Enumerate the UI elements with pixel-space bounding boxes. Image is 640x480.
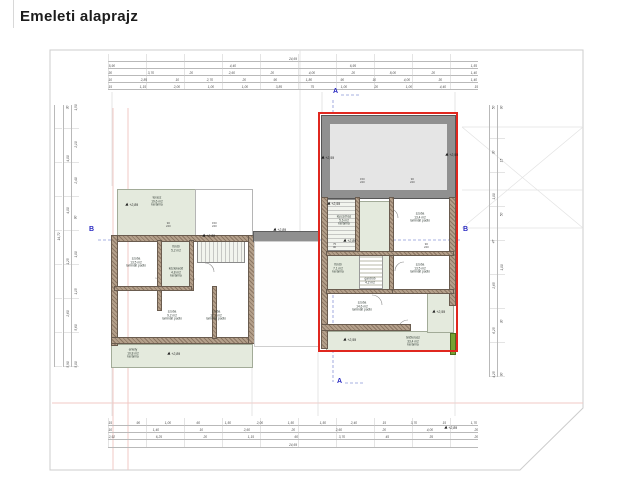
highlight-red-box [318, 112, 458, 352]
dim-value: 15 [108, 85, 112, 89]
dim-value: 2,40 [74, 178, 78, 184]
wall [112, 338, 254, 343]
opening-size: 150240 [360, 178, 365, 184]
room-area: 4,2 m2 [352, 281, 387, 285]
level-value: +2,89 [347, 238, 356, 242]
level-value: +2,89 [206, 233, 215, 237]
room-label-terasz: terasz19,6 m2kerámia [139, 196, 174, 207]
dim-value: 1,00 [242, 85, 248, 89]
level-value: +2,89 [277, 227, 286, 231]
room-area: 5,2 m2 [158, 249, 193, 253]
room-label-szoba4: szoba13,4 m2laminált padló [402, 212, 437, 223]
level-marker: +2,59 [328, 201, 340, 205]
dim-value: 1,15 [74, 288, 78, 294]
dim-value: 20 [474, 435, 478, 439]
level-marker: +2,59 [433, 309, 445, 313]
roof-projection-lines [462, 127, 583, 228]
dim-value: 2,92 [109, 435, 115, 439]
dim-chain-right-1: 50301,00472,656,254,25 [489, 105, 497, 377]
dim-value: 45 [386, 435, 390, 439]
room-floor: kerámia [326, 222, 361, 226]
wall [112, 236, 117, 345]
dim-value: 1,15 [140, 85, 146, 89]
dim-value: 1,00 [208, 85, 214, 89]
dim-value: 2,60 [66, 310, 70, 316]
room-label-szoba5: szoba13,5 m2laminált padló [402, 263, 437, 274]
dim-chain-left-1: 304,004,001,252,605,90 [63, 105, 71, 367]
dim-value: 90 [499, 106, 503, 110]
dim-value: 90 [73, 216, 77, 220]
level-marker: +2,89 [126, 202, 138, 206]
level-marker: +2,89 [344, 238, 356, 242]
room-label-furdo1: fürdő5,2 m2 [158, 245, 193, 252]
level-marker: +2,59 [322, 155, 334, 159]
room-label-tetoterasz: tetőterasz33,4 m2kerámia [395, 336, 430, 347]
opening-height: 240 [212, 225, 217, 228]
section-marker-b-left: B [89, 226, 94, 233]
dim-chain-top-5: 151,152,001,001,003,85751,00201,004,4015 [108, 82, 478, 90]
opening-height: 240 [424, 246, 429, 249]
wall [115, 287, 191, 290]
room-label-szoba1: szoba13,5 m2laminált padló [118, 257, 153, 268]
section-marker-a-bottom: A [337, 378, 342, 385]
dim-value: 50 [491, 106, 495, 110]
dim-value: 3,70 [339, 435, 345, 439]
opening-size: 90240 [166, 222, 171, 228]
section-marker-b-right: B [463, 226, 468, 233]
dim-chain-left-2: 1,502,102,40901,001,155,605,00 [71, 105, 79, 367]
dim-value: 1,00 [341, 85, 347, 89]
room-label-furdo2: fürdő7,1 m2kerámia [320, 263, 355, 274]
dim-value: 90 [499, 373, 503, 377]
room-floor: kerámia [139, 203, 174, 207]
dim-value: 4,40 [440, 85, 446, 89]
dim-value: 6,25 [492, 327, 496, 333]
dim-chain-bottom-3: 2,926,25201,15603,70453520 [108, 432, 478, 440]
level-value: +2,89 [171, 351, 180, 355]
opening-size: 90240 [424, 243, 429, 249]
level-value: +2,89 [448, 425, 457, 429]
dim-value: 2,00 [174, 85, 180, 89]
level-marker: +2,89 [274, 227, 286, 231]
dim-value: 24,69 [289, 443, 297, 447]
room-floor: laminált padló [344, 308, 379, 312]
dim-value: 4,00 [66, 207, 70, 213]
level-value: +2,59 [347, 337, 356, 341]
dim-value: 30 [499, 319, 503, 323]
dim-value: 2,65 [492, 282, 496, 288]
room-label-szoba3: szoba12,1 m2laminált padló [198, 310, 233, 321]
room-floor: laminált padló [402, 270, 437, 274]
dim-value: 1,25 [66, 259, 70, 265]
dim-chain-left-total: 14,72 [54, 105, 62, 367]
dim-value: 60 [295, 435, 299, 439]
room-label-szoba6: szoba14,6 m2laminált padló [344, 301, 379, 312]
room-floor: kerámia [115, 355, 150, 359]
level-value: +2,89 [129, 202, 138, 206]
level-value: +2,59 [436, 309, 445, 313]
dim-value: 5,90 [66, 361, 70, 367]
opening-height: 90 [333, 246, 336, 249]
dim-value: 1,00 [406, 85, 412, 89]
opening-size: 90240 [410, 178, 415, 184]
dim-value: 4,25 [492, 371, 496, 377]
floorplan-page: Emeleti alaprajz [0, 0, 640, 480]
dim-value: 30 [65, 106, 69, 110]
room-label-kozl1: közlekedő4,8 m2kerámia [158, 267, 193, 278]
dim-value: 3,85 [276, 85, 282, 89]
room-label-szoba2: szoba9,2 m2laminált padló [154, 310, 189, 321]
stairs-left-unit [198, 242, 244, 262]
opening-height: 240 [166, 225, 171, 228]
room-label-gardrob: gardrób4,2 m2 [352, 277, 387, 284]
dim-value: 5,60 [74, 325, 78, 331]
dim-value: 20 [375, 85, 379, 89]
dim-value: 1,15 [248, 435, 254, 439]
room-label-lepcso: lépcsőház5,6 m2kerámia [326, 215, 361, 226]
dim-value: 20 [203, 435, 207, 439]
room-floor: laminált padló [154, 317, 189, 321]
dim-value: 50 [499, 213, 503, 217]
level-marker: +2,59 [344, 337, 356, 341]
level-marker: +2,89 [445, 425, 457, 429]
dim-value: 75 [310, 85, 314, 89]
dim-value: 15 [474, 85, 478, 89]
dim-value: 47 [491, 239, 495, 243]
room-label-erkely: erkély10,8 m2kerámia [115, 348, 150, 359]
section-marker-a-top: A [333, 88, 338, 95]
opening-size: 150240 [212, 222, 217, 228]
opening-size: 7590 [333, 243, 336, 249]
opening-height: 240 [360, 181, 365, 184]
level-value: +2,59 [449, 152, 458, 156]
dim-value: 1,50 [74, 104, 78, 110]
dim-value: 1,00 [500, 265, 504, 271]
level-marker: +2,89 [203, 233, 215, 237]
dim-value: 14,72 [57, 232, 61, 240]
wall [112, 236, 254, 241]
room-floor: laminált padló [118, 264, 153, 268]
dim-value: 2,10 [74, 141, 78, 147]
level-value: +2,59 [331, 201, 340, 205]
void-middle [254, 241, 320, 347]
room-floor: kerámia [320, 270, 355, 274]
dim-chain-bottom-total: 24,69 [108, 440, 478, 448]
room-floor: laminált padló [198, 317, 233, 321]
dim-value: 1,00 [74, 251, 78, 257]
level-value: +2,59 [325, 155, 334, 159]
level-marker: +2,89 [168, 351, 180, 355]
room-floor: kerámia [158, 274, 193, 278]
room-floor: kerámia [395, 343, 430, 347]
room-floor: laminált padló [402, 219, 437, 223]
dim-value: 6,25 [156, 435, 162, 439]
upper-room-left-unit [196, 190, 252, 236]
opening-height: 240 [410, 181, 415, 184]
dim-value: 15 [499, 159, 503, 163]
dim-value: 5,00 [74, 361, 78, 367]
dim-value: 30 [491, 150, 495, 154]
level-marker: +2,59 [446, 152, 458, 156]
dim-value: 4,00 [66, 156, 70, 162]
dim-value: 1,00 [492, 193, 496, 199]
dim-chain-right-2: 9015501,003090 [497, 105, 505, 377]
parapet-band-middle [254, 232, 318, 241]
dim-value: 35 [430, 435, 434, 439]
